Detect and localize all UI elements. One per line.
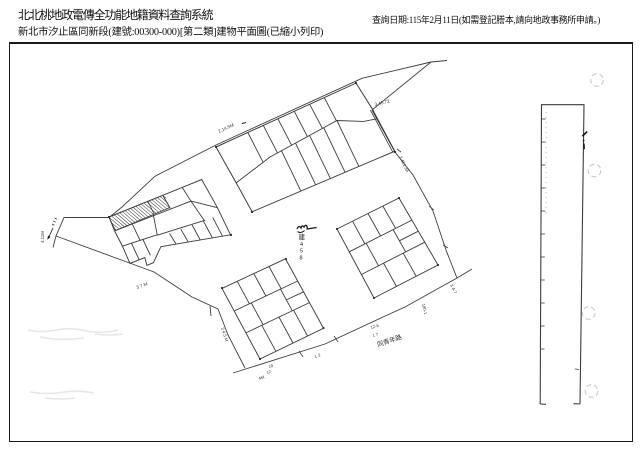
svg-text:5: 5	[300, 249, 303, 255]
svg-text:建: 建	[299, 232, 306, 241]
svg-text:1 7: 1 7	[372, 331, 379, 338]
svg-text:4.11M: 4.11M	[40, 231, 45, 243]
svg-text:同青年路: 同青年路	[376, 332, 404, 349]
svg-text:8: 8	[300, 256, 303, 262]
svg-text:4: 4	[300, 242, 303, 248]
svg-text:3 4-7: 3 4-7	[449, 283, 458, 295]
svg-text:4M.: 4M.	[258, 374, 266, 381]
svg-text:2.4E1.3A: 2.4E1.3A	[398, 155, 410, 173]
svg-text:3 7 M: 3 7 M	[136, 281, 149, 290]
svg-text:2,14.5M: 2,14.5M	[217, 122, 234, 134]
svg-text:2 4.5 M: 2 4.5 M	[220, 327, 229, 343]
svg-text:180-1: 180-1	[421, 303, 428, 315]
svg-text:18: 18	[268, 363, 275, 369]
svg-text:12: 12	[266, 369, 273, 375]
svg-text:3.45.72: 3.45.72	[374, 98, 391, 107]
svg-text:12-6: 12-6	[370, 323, 380, 330]
svg-text:1 3: 1 3	[314, 352, 322, 359]
